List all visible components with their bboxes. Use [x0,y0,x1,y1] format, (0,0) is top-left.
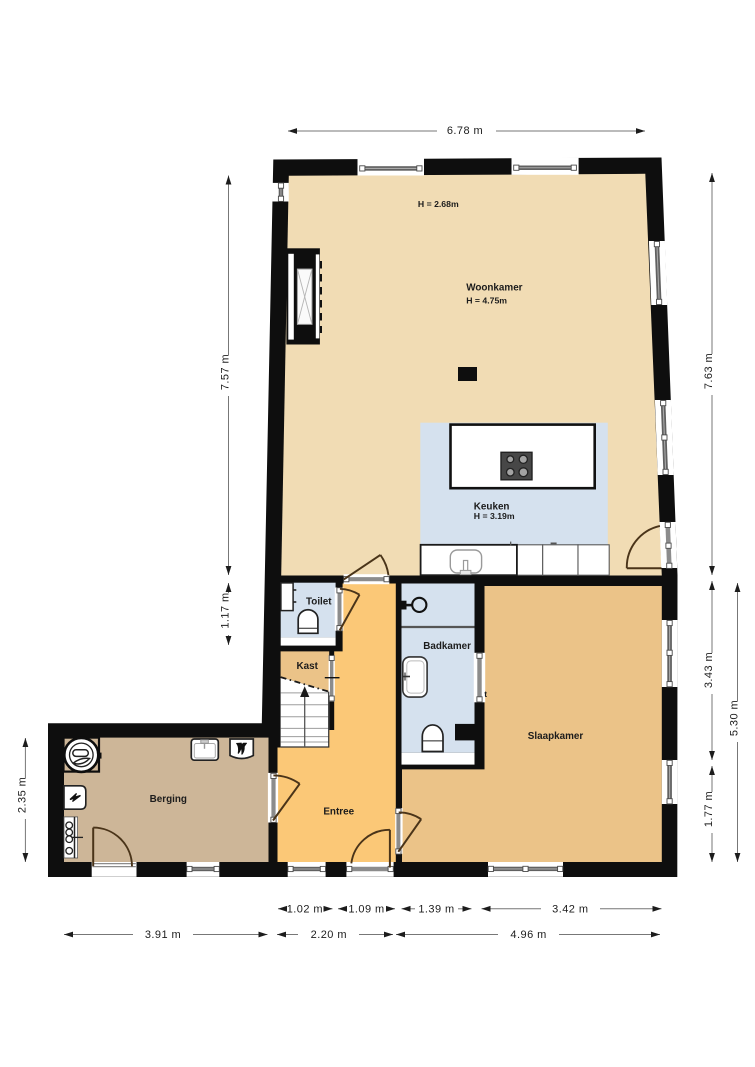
svg-text:1.17 m: 1.17 m [220,592,232,628]
svg-text:7.63 m: 7.63 m [703,353,715,389]
svg-text:4.96 m: 4.96 m [510,929,546,941]
svg-text:1.39 m: 1.39 m [418,903,454,915]
svg-text:Woonkamer: Woonkamer [466,282,522,293]
svg-text:7.57 m: 7.57 m [220,354,232,390]
svg-text:Entree: Entree [323,806,354,817]
svg-text:t: t [484,689,487,699]
svg-text:1.02 m: 1.02 m [287,903,323,915]
svg-text:3.43 m: 3.43 m [703,652,715,688]
svg-text:Berging: Berging [150,794,187,805]
svg-text:5.30 m: 5.30 m [729,700,741,736]
svg-text:2.35 m: 2.35 m [16,777,28,813]
svg-text:Kast: Kast [296,661,318,672]
svg-text:Badkamer: Badkamer [423,641,471,652]
svg-text:H = 3.19m: H = 3.19m [474,511,515,521]
svg-text:Toilet: Toilet [306,596,332,607]
svg-text:2.20 m: 2.20 m [311,929,347,941]
svg-text:H = 4.75m: H = 4.75m [466,295,507,305]
svg-text:3.91 m: 3.91 m [145,929,181,941]
svg-text:1.77 m: 1.77 m [703,791,715,827]
svg-text:6.78 m: 6.78 m [447,125,483,137]
svg-text:H = 2.68m: H = 2.68m [418,199,459,209]
svg-text:1.09 m: 1.09 m [348,903,384,915]
svg-text:Slaapkamer: Slaapkamer [528,731,584,742]
svg-text:3.42 m: 3.42 m [552,903,588,915]
